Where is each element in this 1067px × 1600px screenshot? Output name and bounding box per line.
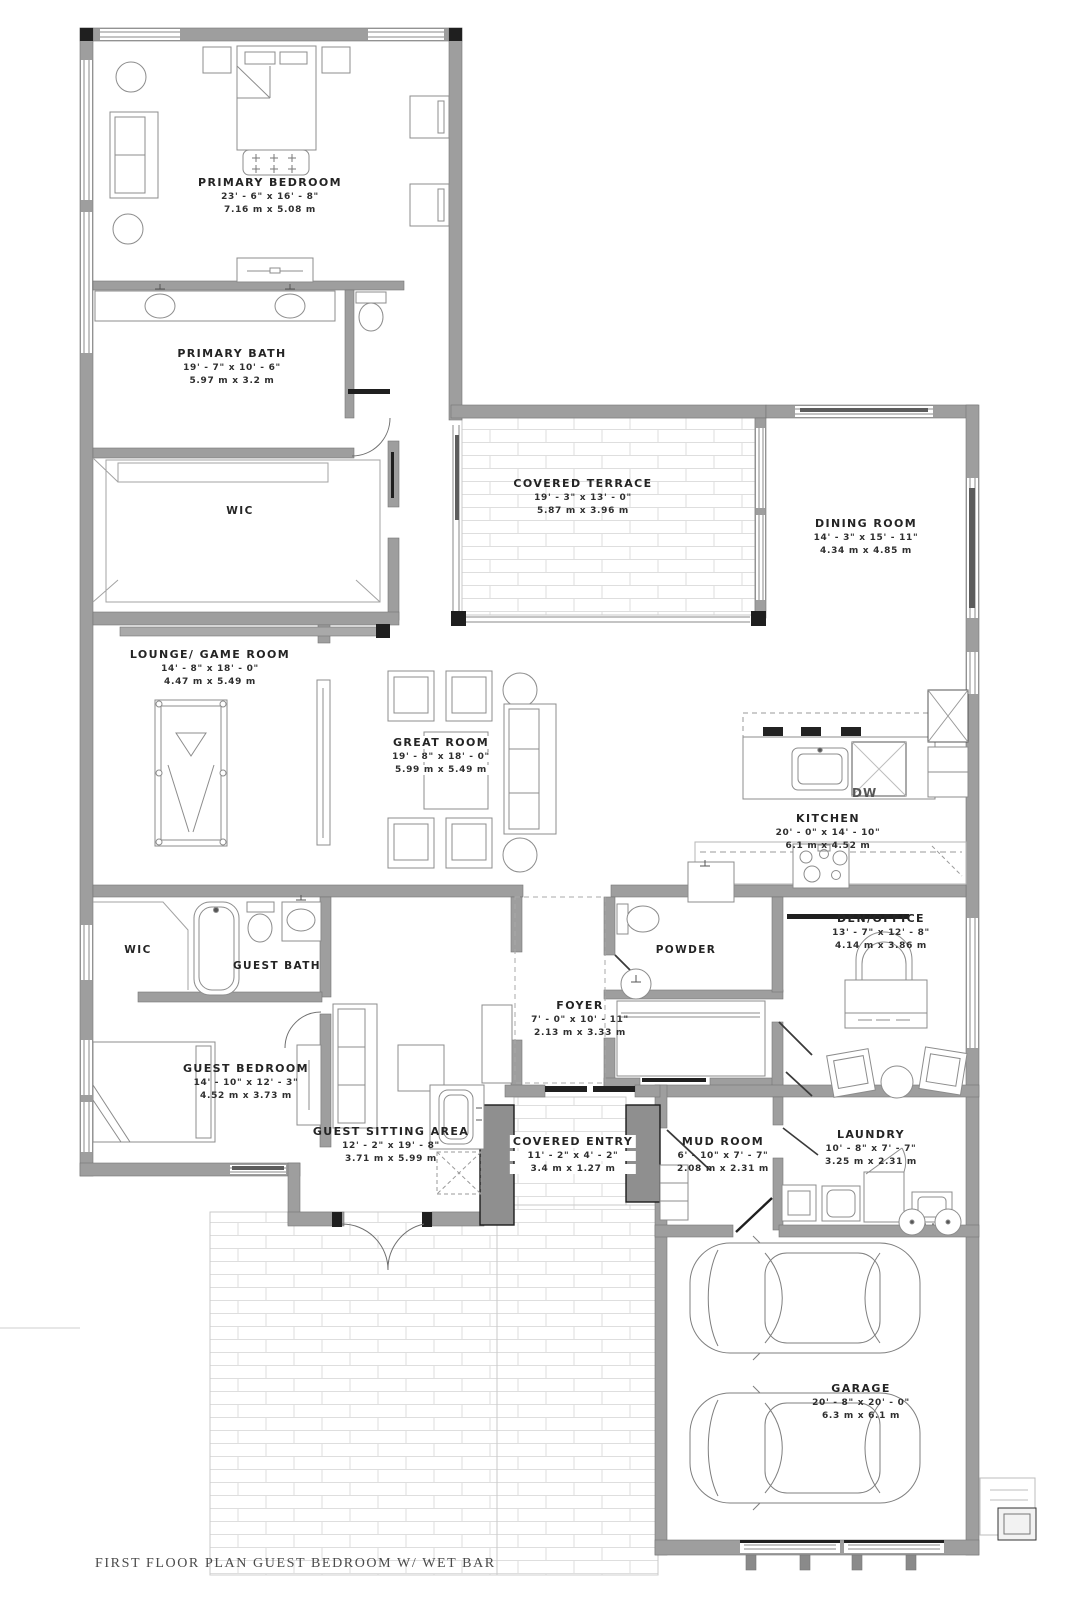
room-dims-metric: 3.25 m x 2.31 m <box>825 1157 917 1167</box>
wic-shelving <box>93 458 380 602</box>
room-label-primary-bedroom: PRIMARY BEDROOM 23' - 6" x 16' - 8" 7.16… <box>198 176 342 215</box>
room-dims-imperial: 14' - 10" x 12' - 3" <box>183 1078 309 1088</box>
pool-table <box>155 700 227 846</box>
room-label-den-office: DEN/OFFICE 13' - 7" x 12' - 8" 4.14 m x … <box>832 912 930 951</box>
room-name: WIC <box>226 505 253 518</box>
room-dims-metric: 5.87 m x 3.96 m <box>513 506 652 516</box>
room-label-dining-room: DINING ROOM 14' - 3" x 15' - 11" 4.34 m … <box>811 517 922 556</box>
room-dims-imperial: 14' - 3" x 15' - 11" <box>811 533 922 543</box>
room-label-guest-wic: WIC <box>124 944 151 957</box>
round-table <box>113 214 143 244</box>
room-label-guest-sitting-area: GUEST SITTING AREA 12' - 2" x 19' - 8" 3… <box>313 1125 469 1164</box>
floor-plan-sheet: PRIMARY BEDROOM 23' - 6" x 16' - 8" 7.16… <box>0 0 1067 1600</box>
room-label-primary-wic: WIC <box>226 505 253 518</box>
terrace-paving <box>462 418 755 615</box>
sitting-sofa <box>333 1004 377 1128</box>
floor-plan-drawing <box>0 0 1067 1600</box>
room-label-powder: POWDER <box>656 944 717 957</box>
armchair <box>410 184 449 226</box>
room-dims-imperial: 19' - 3" x 13' - 0" <box>513 493 652 503</box>
side-table <box>503 673 537 707</box>
room-dims-imperial: 20' - 8" x 20' - 0" <box>812 1398 910 1408</box>
den-chair <box>827 1049 876 1098</box>
room-name: COVERED ENTRY <box>510 1135 636 1148</box>
room-dims-imperial: 12' - 2" x 19' - 8" <box>313 1141 469 1151</box>
laundry-cabinet <box>782 1185 816 1221</box>
room-dims-metric: 4.34 m x 4.85 m <box>811 546 922 556</box>
great-room-chair <box>446 818 492 868</box>
room-label-guest-bath: GUEST BATH <box>233 960 321 973</box>
room-dims-imperial: 20' - 0" x 14' - 10" <box>776 828 881 838</box>
room-name: GUEST BEDROOM <box>183 1062 309 1075</box>
room-dims-imperial: 13' - 7" x 12' - 8" <box>832 928 930 938</box>
room-label-mud-room: MUD ROOM 6' - 10" x 7' - 7" 2.08 m x 2.3… <box>677 1135 769 1174</box>
room-dims-metric: 3.71 m x 5.99 m <box>313 1154 469 1164</box>
laundry-door-leaf <box>783 1128 818 1155</box>
room-dims-imperial: 23' - 6" x 16' - 8" <box>198 192 342 202</box>
room-label-covered-terrace: COVERED TERRACE 19' - 3" x 13' - 0" 5.87… <box>513 477 652 516</box>
foyer-ceiling-dash <box>515 897 605 1083</box>
room-dims-metric: 3.4 m x 1.27 m <box>510 1164 636 1174</box>
kitchen-island <box>743 727 935 799</box>
bedroom-sofa <box>110 112 158 198</box>
round-table <box>116 62 146 92</box>
great-room-sofa <box>504 704 556 834</box>
great-room-chair <box>388 818 434 868</box>
room-dims-metric: 4.52 m x 3.73 m <box>183 1091 309 1101</box>
room-name: FOYER <box>531 999 629 1012</box>
room-dims-imperial: 19' - 7" x 10' - 6" <box>177 363 286 373</box>
sheet-title: FIRST FLOOR PLAN GUEST BEDROOM W/ WET BA… <box>95 1556 496 1572</box>
room-name: DEN/OFFICE <box>832 912 930 925</box>
tub <box>194 902 239 995</box>
room-dims-metric: 4.47 m x 5.49 m <box>130 677 290 687</box>
guest-bedroom-door-arc <box>285 1012 321 1048</box>
desk <box>845 980 927 1028</box>
room-dims-imperial: 19' - 8" x 18' - 0" <box>389 752 493 762</box>
room-label-primary-bath: PRIMARY BATH 19' - 7" x 10' - 6" 5.97 m … <box>177 347 286 386</box>
room-label-lounge-game-room: LOUNGE/ GAME ROOM 14' - 8" x 18' - 0" 4.… <box>130 648 290 687</box>
room-name: WIC <box>124 944 151 957</box>
room-name: GARAGE <box>812 1382 910 1395</box>
hall-cabinet <box>482 1005 512 1083</box>
room-name: PRIMARY BATH <box>177 347 286 360</box>
toilet <box>247 902 274 942</box>
room-name: DINING ROOM <box>811 517 922 530</box>
room-dims-imperial: 14' - 8" x 18' - 0" <box>130 664 290 674</box>
prep-sink <box>688 860 734 902</box>
room-name: GUEST BATH <box>233 960 321 973</box>
room-dims-metric: 6.1 m x 4.52 m <box>776 841 881 851</box>
room-name: GUEST SITTING AREA <box>313 1125 469 1138</box>
kitchen-corner-dash <box>932 846 962 876</box>
room-dims-metric: 4.14 m x 3.86 m <box>832 941 930 951</box>
room-dims-imperial: 7' - 0" x 10' - 11" <box>531 1015 629 1025</box>
room-name: LAUNDRY <box>825 1128 917 1141</box>
washer <box>822 1186 860 1221</box>
primary-bed <box>237 46 316 150</box>
guest-vanity <box>282 895 321 941</box>
driveway-paving <box>210 1212 497 1575</box>
pantry-cabinet <box>928 690 968 742</box>
equipment-box <box>998 1508 1036 1540</box>
room-dims-metric: 6.3 m x 6.1 m <box>812 1411 910 1421</box>
room-label-guest-bedroom: GUEST BEDROOM 14' - 10" x 12' - 3" 4.52 … <box>183 1062 309 1101</box>
room-dims-imperial: 11' - 2" x 4' - 2" <box>510 1151 636 1161</box>
den-chair <box>919 1047 967 1095</box>
media-console <box>317 680 330 845</box>
fridge <box>928 747 968 797</box>
nightstand <box>203 47 231 73</box>
room-dims-imperial: 10' - 8" x 7' - 7" <box>825 1144 917 1154</box>
powder-sink <box>621 969 651 999</box>
room-name: COVERED TERRACE <box>513 477 652 490</box>
nightstand <box>322 47 350 73</box>
bath-door-arc <box>352 418 390 456</box>
room-dims-metric: 5.99 m x 5.49 m <box>389 765 493 775</box>
room-dims-metric: 5.97 m x 3.2 m <box>177 376 286 386</box>
dresser <box>237 258 313 282</box>
den-table <box>881 1066 913 1098</box>
car <box>690 1236 920 1360</box>
room-label-kitchen: KITCHEN 20' - 0" x 14' - 10" 6.1 m x 4.5… <box>776 812 881 851</box>
side-table-square <box>398 1045 444 1091</box>
great-room-chair <box>446 671 492 721</box>
bed-bench <box>243 150 309 175</box>
toilet <box>356 292 386 331</box>
coat-closet <box>617 1001 765 1076</box>
powder-toilet <box>617 904 659 934</box>
room-name: LOUNGE/ GAME ROOM <box>130 648 290 661</box>
room-dims-metric: 2.08 m x 2.31 m <box>677 1164 769 1174</box>
room-label-covered-entry: COVERED ENTRY 11' - 2" x 4' - 2" 3.4 m x… <box>510 1135 636 1174</box>
room-name: PRIMARY BEDROOM <box>198 176 342 189</box>
walkway-paving <box>497 1205 658 1575</box>
room-label-foyer: FOYER 7' - 0" x 10' - 11" 2.13 m x 3.33 … <box>531 999 629 1038</box>
room-name: GREAT ROOM <box>389 736 493 749</box>
mud-garage-door-leaf <box>736 1198 772 1232</box>
side-table <box>503 838 537 872</box>
great-room-chair <box>388 671 434 721</box>
room-dims-metric: 7.16 m x 5.08 m <box>198 205 342 215</box>
room-label-garage: GARAGE 20' - 8" x 20' - 0" 6.3 m x 6.1 m <box>812 1382 910 1421</box>
dishwasher-label: DW <box>852 786 877 800</box>
room-label-laundry: LAUNDRY 10' - 8" x 7' - 7" 3.25 m x 2.31… <box>825 1128 917 1167</box>
room-name: KITCHEN <box>776 812 881 825</box>
room-name: MUD ROOM <box>677 1135 769 1148</box>
armchair <box>410 96 449 138</box>
room-label-great-room: GREAT ROOM 19' - 8" x 18' - 0" 5.99 m x … <box>389 736 493 775</box>
room-dims-imperial: 6' - 10" x 7' - 7" <box>677 1151 769 1161</box>
room-name: POWDER <box>656 944 717 957</box>
room-dims-metric: 2.13 m x 3.33 m <box>531 1028 629 1038</box>
